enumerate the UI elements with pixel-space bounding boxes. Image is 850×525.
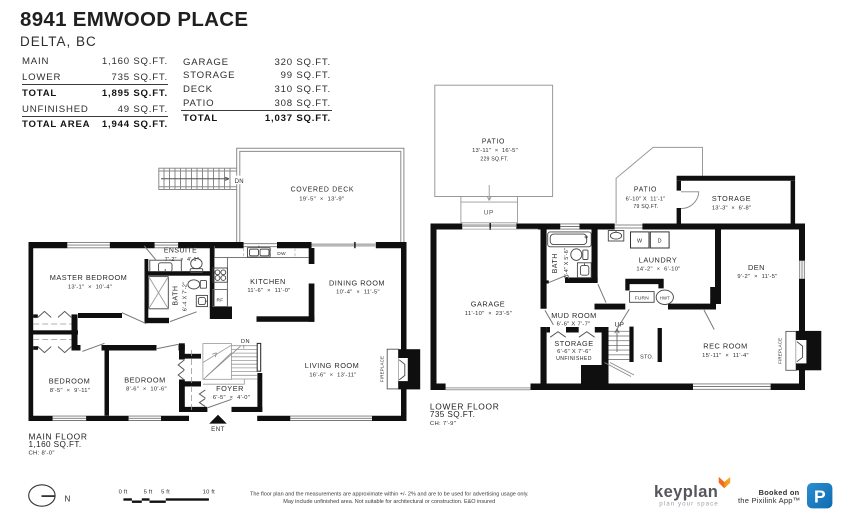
svg-text:DEN: DEN bbox=[748, 263, 765, 272]
svg-text:5 ft: 5 ft bbox=[144, 489, 153, 495]
svg-text:14'-2" × 6'-10": 14'-2" × 6'-10" bbox=[636, 267, 680, 273]
svg-text:PATIO: PATIO bbox=[634, 186, 657, 193]
svg-text:LIVING ROOM: LIVING ROOM bbox=[305, 361, 359, 370]
svg-text:11'-10" × 23'-5": 11'-10" × 23'-5" bbox=[465, 311, 512, 317]
svg-text:BEDROOM: BEDROOM bbox=[124, 375, 165, 384]
svg-text:9'-2" × 11'-5": 9'-2" × 11'-5" bbox=[737, 274, 777, 280]
svg-text:LAUNDRY: LAUNDRY bbox=[639, 255, 677, 264]
svg-text:13'-11" × 16'-5": 13'-11" × 16'-5" bbox=[472, 148, 518, 154]
svg-text:GARAGE: GARAGE bbox=[471, 299, 505, 308]
svg-text:10'-4" × 11'-5": 10'-4" × 11'-5" bbox=[336, 290, 380, 296]
svg-text:DW: DW bbox=[277, 251, 286, 257]
svg-text:229 SQ.FT.: 229 SQ.FT. bbox=[480, 157, 508, 163]
svg-text:5 ft: 5 ft bbox=[161, 489, 170, 495]
svg-text:ENSUITE: ENSUITE bbox=[164, 248, 197, 255]
svg-text:D: D bbox=[658, 239, 662, 245]
svg-text:15'-11" × 11'-4": 15'-11" × 11'-4" bbox=[702, 353, 749, 359]
svg-text:the Pixilink App™: the Pixilink App™ bbox=[738, 496, 801, 505]
svg-text:W: W bbox=[637, 239, 643, 245]
svg-text:FURN: FURN bbox=[635, 296, 649, 302]
svg-text:6'-4 X 7'-2": 6'-4 X 7'-2" bbox=[183, 282, 189, 312]
svg-text:STORAGE: STORAGE bbox=[554, 339, 593, 348]
svg-text:N: N bbox=[65, 494, 71, 503]
svg-text:CH: 7'-9": CH: 7'-9" bbox=[430, 421, 456, 427]
svg-text:BATH: BATH bbox=[173, 286, 180, 306]
svg-text:plan your space: plan your space bbox=[659, 500, 718, 507]
svg-text:PATIO: PATIO bbox=[482, 139, 505, 146]
svg-text:MASTER BEDROOM: MASTER BEDROOM bbox=[50, 273, 128, 282]
svg-text:BATH: BATH bbox=[552, 253, 559, 273]
svg-text:8'-5" × 9'-11": 8'-5" × 9'-11" bbox=[50, 388, 90, 394]
svg-text:13'-1" × 10'-4": 13'-1" × 10'-4" bbox=[68, 284, 112, 290]
svg-text:13'-3" × 6'-8": 13'-3" × 6'-8" bbox=[712, 205, 751, 211]
svg-text:STORAGE: STORAGE bbox=[712, 194, 751, 203]
svg-text:P: P bbox=[814, 486, 826, 506]
svg-text:May include unfinished area. N: May include unfinished area. Not suitabl… bbox=[283, 499, 495, 505]
svg-text:735 SQ.FT.: 735 SQ.FT. bbox=[430, 410, 475, 419]
svg-text:6'-6" X 7'-7": 6'-6" X 7'-7" bbox=[557, 322, 591, 328]
svg-text:The floor plan and the measure: The floor plan and the measurements are … bbox=[250, 491, 529, 497]
svg-text:10 ft: 10 ft bbox=[203, 489, 215, 495]
svg-text:DN: DN bbox=[235, 179, 244, 185]
svg-text:6'-10" X 11'-1": 6'-10" X 11'-1" bbox=[626, 196, 666, 202]
svg-text:RF: RF bbox=[217, 298, 224, 304]
svg-text:16'-6" × 13'-11": 16'-6" × 13'-11" bbox=[309, 372, 356, 378]
svg-text:DN: DN bbox=[241, 339, 250, 345]
svg-text:79 SQ.FT.: 79 SQ.FT. bbox=[633, 204, 658, 210]
svg-text:MUD ROOM: MUD ROOM bbox=[551, 311, 597, 320]
svg-text:7'-4" X 5'-6": 7'-4" X 5'-6" bbox=[564, 248, 570, 279]
svg-text:keyplan: keyplan bbox=[654, 483, 718, 501]
svg-text:STO.: STO. bbox=[640, 355, 654, 361]
svg-text:19'-5" × 13'-9": 19'-5" × 13'-9" bbox=[299, 197, 344, 203]
svg-text:6'-6" X 7'-6": 6'-6" X 7'-6" bbox=[557, 349, 591, 355]
svg-text:7'-2" × 4'-1": 7'-2" × 4'-1" bbox=[165, 257, 199, 263]
svg-text:UNFINISHED: UNFINISHED bbox=[556, 356, 592, 362]
svg-text:ENT: ENT bbox=[211, 426, 225, 433]
svg-text:DINING ROOM: DINING ROOM bbox=[329, 278, 385, 287]
svg-text:COVERED DECK: COVERED DECK bbox=[291, 186, 355, 193]
svg-text:REC ROOM: REC ROOM bbox=[703, 341, 747, 350]
svg-text:KITCHEN: KITCHEN bbox=[250, 277, 286, 286]
svg-text:CH: 8'-0": CH: 8'-0" bbox=[29, 450, 55, 456]
svg-text:FOYER: FOYER bbox=[216, 384, 244, 393]
svg-text:11'-6" × 11'-0": 11'-6" × 11'-0" bbox=[247, 288, 290, 294]
svg-text:0 ft: 0 ft bbox=[119, 489, 128, 495]
svg-text:HWT: HWT bbox=[660, 295, 670, 300]
svg-text:FIREPLACE: FIREPLACE bbox=[778, 338, 783, 364]
svg-text:8'-6" × 10'-6": 8'-6" × 10'-6" bbox=[126, 386, 167, 392]
svg-text:UP: UP bbox=[484, 210, 494, 217]
svg-text:6'-5" × 4'-0": 6'-5" × 4'-0" bbox=[213, 395, 250, 401]
svg-text:BEDROOM: BEDROOM bbox=[49, 377, 90, 386]
svg-text:FIREPLACE: FIREPLACE bbox=[379, 356, 384, 382]
svg-text:1,160 SQ.FT.: 1,160 SQ.FT. bbox=[29, 440, 82, 449]
